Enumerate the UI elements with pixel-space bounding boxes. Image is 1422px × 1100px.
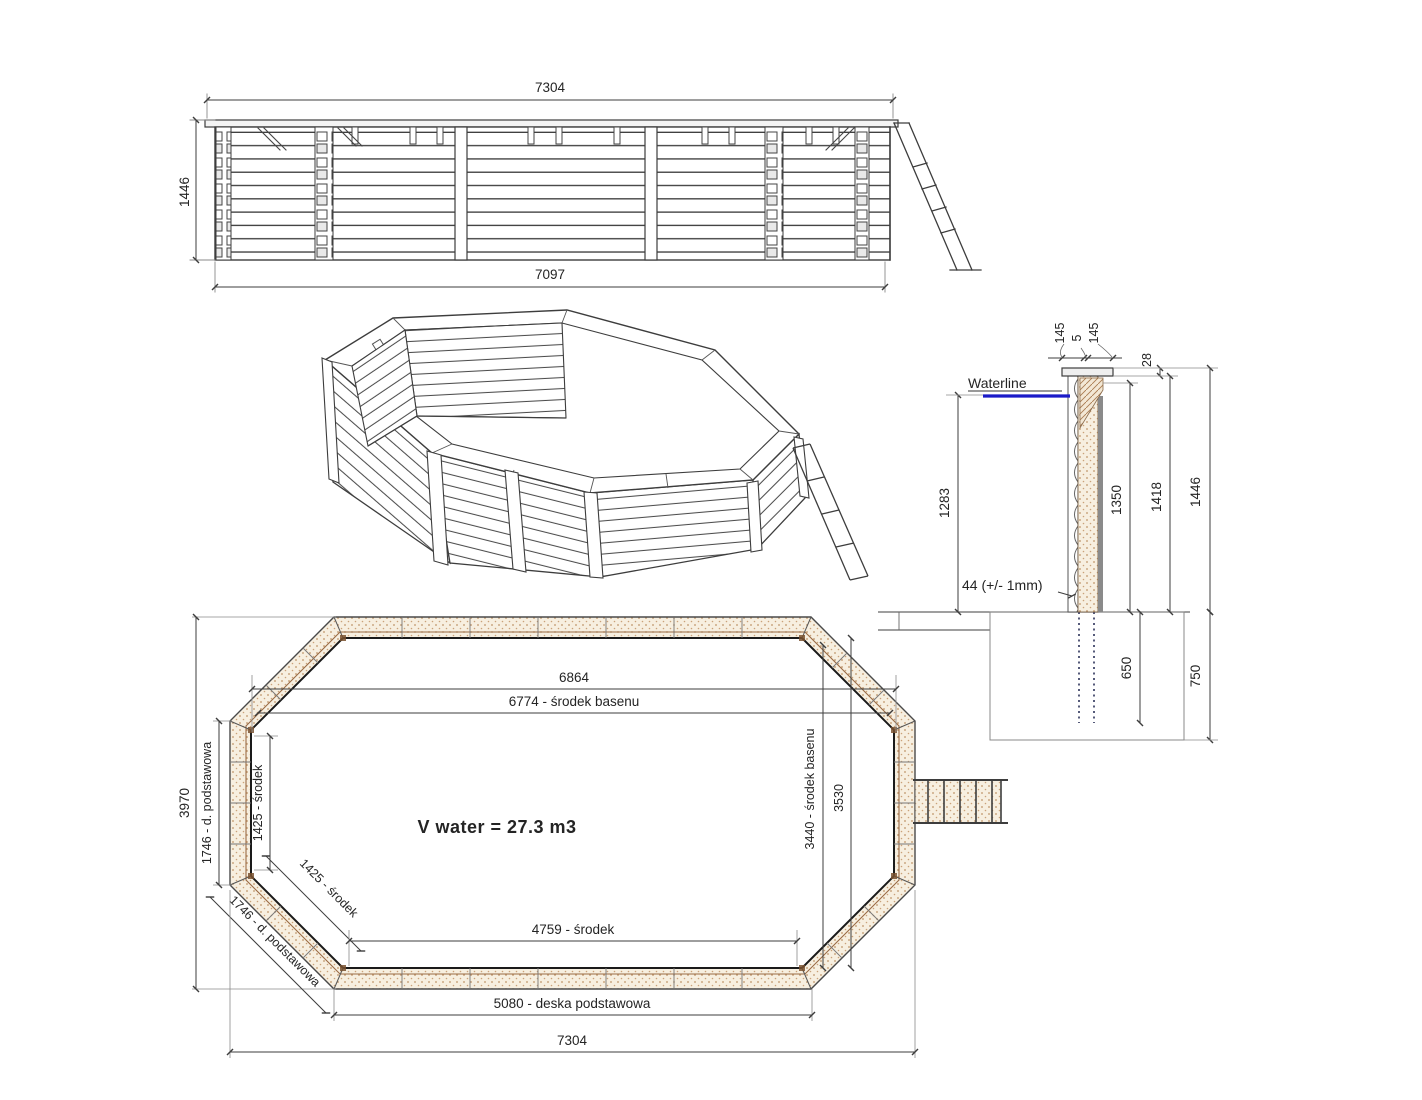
section-ground [878, 612, 1190, 740]
technical-drawing-canvas: 7304 [0, 0, 1422, 1100]
waterline-label: Waterline [968, 375, 1027, 391]
section-dim-foundation-depth-label: 750 [1188, 665, 1203, 688]
elevation-dim-height: 1446 [177, 120, 215, 260]
section-buried-post [1079, 612, 1094, 723]
plan-dim-outer-length-label: 6864 [559, 670, 590, 685]
section-dim-water-height-label: 1283 [937, 488, 952, 518]
section-dim-base-board-label: 44 (+/- 1mm) [962, 577, 1043, 593]
isometric-view [322, 310, 868, 580]
section-dim-post-depth-label: 650 [1119, 657, 1134, 680]
elevation-dim-width-bottom: 7097 [215, 262, 885, 292]
plan-dim-bottom-center-label: 4759 - środek [532, 922, 615, 937]
section-dim-foundation-depth: 750 [1184, 612, 1218, 740]
plan-dim-base-board: 5080 - deska podstawowa [334, 989, 812, 1021]
plan-dim-center-length-label: 6774 - środek basenu [509, 694, 640, 709]
section-dim-cap-gap-label: 5 [1070, 334, 1084, 341]
elevation-dim-width-top: 7304 [207, 80, 893, 100]
section-cap-board [1062, 368, 1113, 376]
section-dim-total-height-label: 1446 [1188, 477, 1203, 507]
elevation-dim-height-label: 1446 [177, 177, 192, 207]
section-wall [1062, 368, 1113, 612]
plan-dim-total-height-label: 3970 [177, 788, 192, 818]
section-liner [1098, 396, 1103, 612]
section-dim-post-depth: 650 [1119, 612, 1140, 723]
plan-inner-face [251, 638, 894, 968]
section-dim-inner-height: 1350 [1103, 383, 1138, 612]
section-dim-base-board: 44 (+/- 1mm) [962, 577, 1072, 596]
plan-dim-side-board-label: 1746 - d. podstawowa [200, 742, 214, 864]
plan-corner-posts [248, 635, 897, 971]
section-dim-wall-height-label: 1418 [1149, 482, 1164, 512]
section-waterline: Waterline [968, 375, 1070, 396]
plan-dim-side-board: 1746 - d. podstawowa [200, 721, 232, 885]
plan-dim-center-length: 6774 - środek basenu [258, 694, 890, 713]
elevation-ladder [894, 123, 981, 270]
section-dim-cap-right-label: 145 [1087, 323, 1101, 344]
section-dim-total-height: 1446 [1113, 368, 1218, 612]
section-dim-rim-drop-label: 28 [1140, 353, 1154, 367]
plan-dim-base-board-label: 5080 - deska podstawowa [494, 996, 651, 1011]
cross-section-view: Waterline 145 5 145 28 1283 [878, 323, 1218, 740]
plan-dim-side-center-label: 1425 - środek [251, 764, 265, 841]
plan-dim-inner-height: 3530 [832, 638, 851, 968]
plan-dim-center-height-label: 3440 - środek basenu [803, 728, 817, 849]
plan-dim-diag-center-label: 1425 - środek [297, 856, 361, 920]
plan-volume-label: V water = 27.3 m3 [417, 817, 576, 837]
elevation-dim-width-top-label: 7304 [535, 80, 566, 95]
pool-technical-drawing-page: 7304 [0, 0, 1422, 1100]
section-dim-rim-drop: 28 [1140, 353, 1160, 376]
plan-dim-inner-height-label: 3530 [832, 784, 846, 812]
plan-dim-center-height: 3440 - środek basenu [803, 645, 823, 968]
plan-dim-side-center: 1425 - środek [251, 736, 278, 870]
elevation-view: 7304 [177, 80, 981, 292]
plan-ladder [913, 780, 1008, 823]
section-dim-inner-height-label: 1350 [1109, 485, 1124, 515]
section-dim-cap-left-label: 145 [1053, 323, 1067, 344]
plan-view: V water = 27.3 m3 6864 6774 - środek bas… [177, 617, 1008, 1058]
plan-dim-total-length-label: 7304 [557, 1033, 588, 1048]
elevation-dim-width-bottom-label: 7097 [535, 267, 565, 282]
section-dim-cap: 145 5 145 [1048, 323, 1122, 361]
plan-dim-bottom-center: 4759 - środek [349, 922, 797, 966]
elevation-top-rail [205, 120, 898, 127]
